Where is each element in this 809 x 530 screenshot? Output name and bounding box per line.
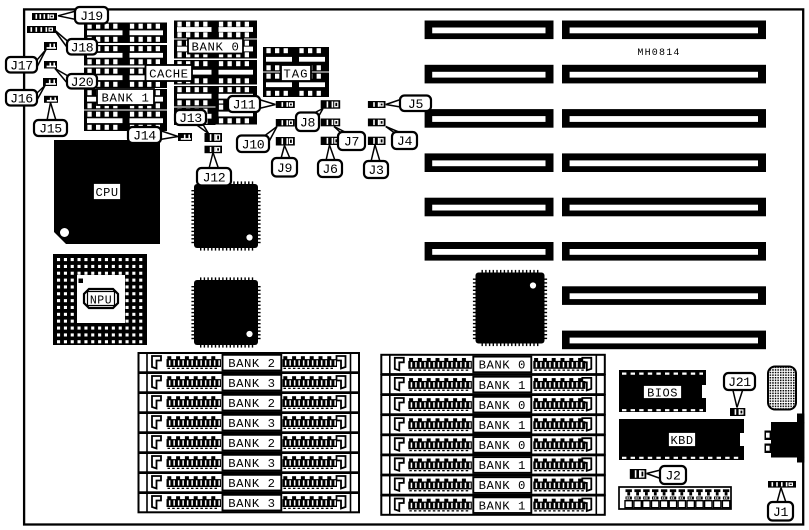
svg-text:J4: J4 bbox=[397, 134, 413, 149]
svg-text:J15: J15 bbox=[39, 122, 62, 137]
svg-text:NPU: NPU bbox=[90, 295, 112, 308]
svg-text:CPU: CPU bbox=[95, 186, 118, 200]
svg-text:J21: J21 bbox=[728, 375, 751, 390]
svg-text:BANK 2: BANK 2 bbox=[228, 357, 275, 371]
svg-text:BANK 2: BANK 2 bbox=[228, 477, 275, 491]
svg-text:J13: J13 bbox=[179, 111, 202, 126]
svg-text:KBD: KBD bbox=[670, 434, 693, 448]
svg-text:BANK 1: BANK 1 bbox=[479, 379, 526, 393]
svg-text:BANK 0: BANK 0 bbox=[479, 359, 526, 373]
svg-text:J10: J10 bbox=[242, 137, 265, 152]
svg-text:J9: J9 bbox=[277, 161, 292, 176]
svg-text:BANK 2: BANK 2 bbox=[228, 397, 275, 411]
svg-text:J14: J14 bbox=[133, 129, 156, 144]
svg-text:BANK 1: BANK 1 bbox=[479, 419, 526, 433]
svg-text:TAG: TAG bbox=[283, 67, 308, 81]
svg-text:J20: J20 bbox=[71, 75, 94, 90]
svg-text:CACHE: CACHE bbox=[149, 67, 188, 81]
svg-text:J8: J8 bbox=[300, 116, 316, 131]
svg-text:BANK 0: BANK 0 bbox=[479, 399, 526, 413]
svg-text:BANK 0: BANK 0 bbox=[479, 439, 526, 453]
svg-text:J7: J7 bbox=[344, 135, 359, 150]
svg-text:BANK 2: BANK 2 bbox=[228, 437, 275, 451]
svg-text:J11: J11 bbox=[233, 98, 256, 113]
svg-text:J16: J16 bbox=[10, 92, 33, 107]
svg-text:J19: J19 bbox=[80, 9, 103, 24]
svg-text:BANK 3: BANK 3 bbox=[228, 377, 275, 391]
svg-text:MH0814: MH0814 bbox=[637, 48, 680, 59]
svg-text:BANK 1: BANK 1 bbox=[479, 459, 526, 473]
svg-text:J3: J3 bbox=[368, 163, 384, 178]
svg-text:J6: J6 bbox=[322, 162, 338, 177]
svg-text:BANK 1: BANK 1 bbox=[479, 499, 526, 513]
svg-text:BIOS: BIOS bbox=[647, 386, 678, 400]
svg-text:BANK 3: BANK 3 bbox=[228, 497, 275, 511]
svg-text:BANK 0: BANK 0 bbox=[479, 479, 526, 493]
svg-text:J12: J12 bbox=[203, 170, 226, 185]
svg-text:J2: J2 bbox=[665, 469, 680, 484]
svg-text:BANK 0: BANK 0 bbox=[192, 40, 240, 54]
svg-text:J18: J18 bbox=[71, 41, 94, 56]
svg-text:BANK 3: BANK 3 bbox=[228, 457, 275, 471]
svg-text:BANK 1: BANK 1 bbox=[102, 91, 150, 105]
svg-text:BANK 3: BANK 3 bbox=[228, 417, 275, 431]
svg-text:J5: J5 bbox=[408, 97, 424, 112]
svg-text:J1: J1 bbox=[773, 505, 789, 520]
svg-text:J17: J17 bbox=[10, 59, 33, 74]
